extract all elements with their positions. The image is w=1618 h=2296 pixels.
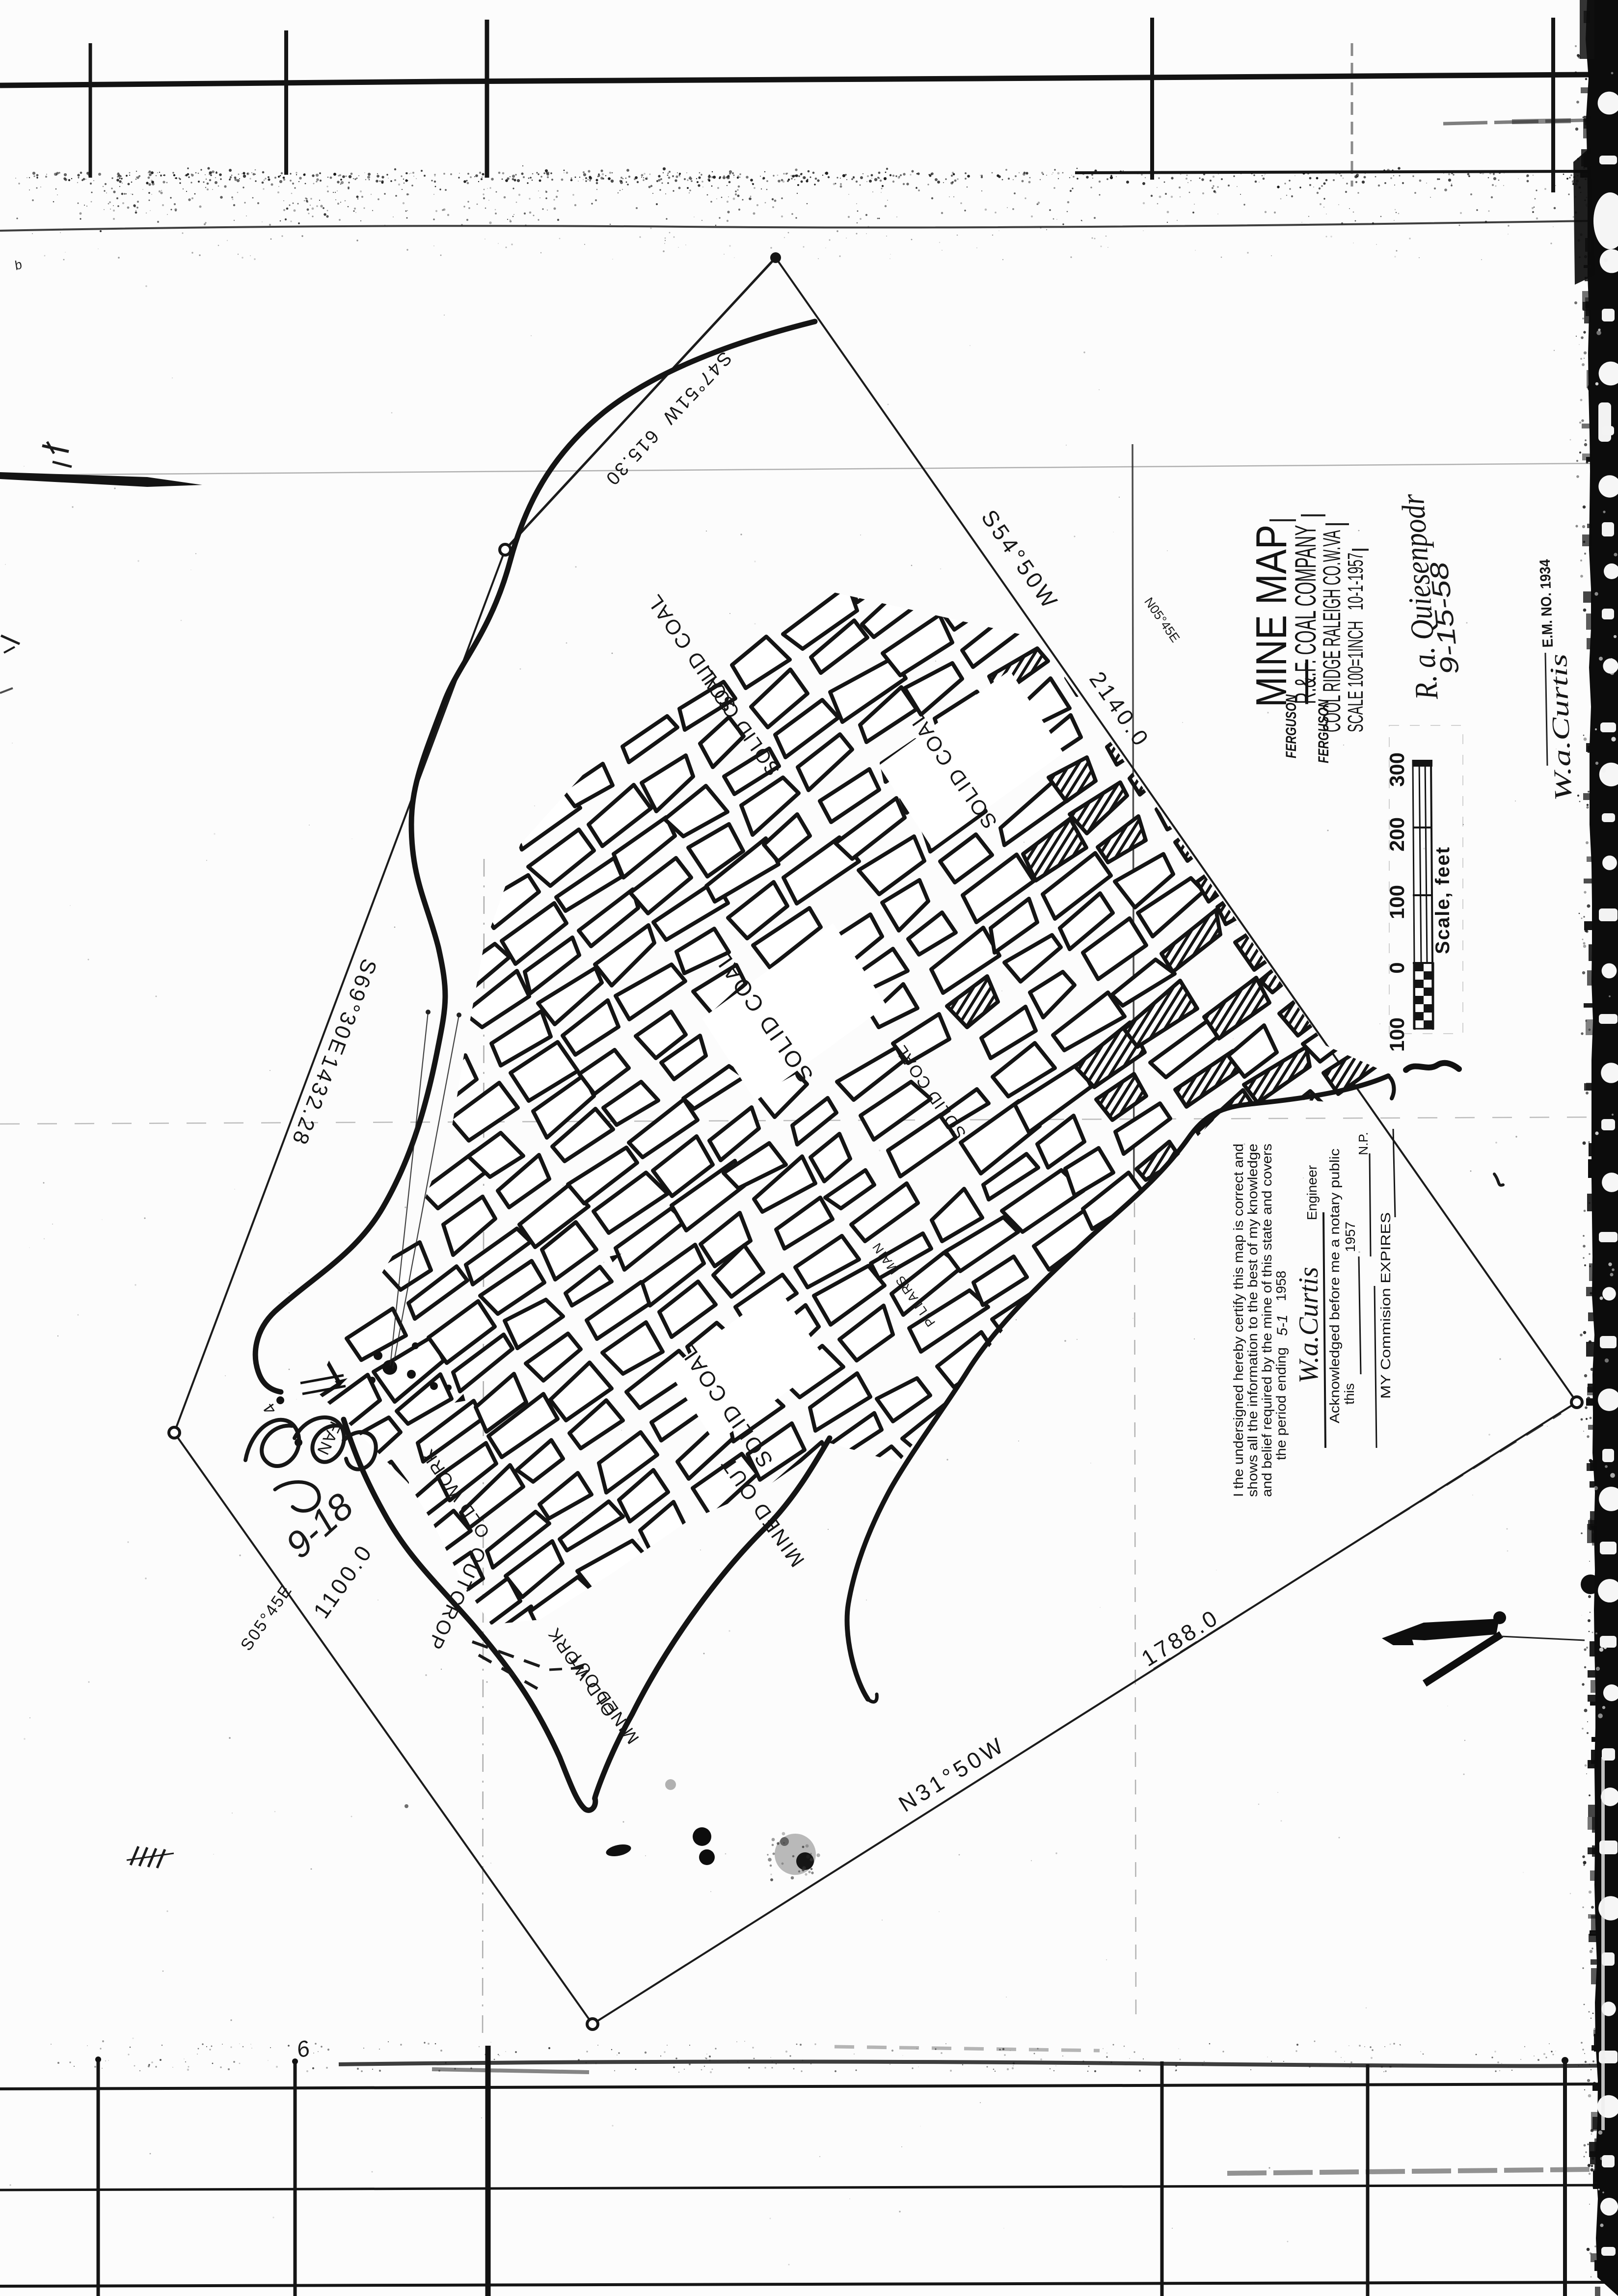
svg-text:6: 6 [294,2035,312,2063]
svg-text:N05°45E: N05°45E [1141,594,1183,645]
svg-text:W.a.Curtis: W.a.Curtis [1294,1267,1324,1384]
svg-text:MY Commision EXPIRES: MY Commision EXPIRES [1378,1212,1393,1399]
svg-text:2140.0: 2140.0 [1084,667,1155,753]
svg-text:b: b [12,257,24,273]
svg-text:5-1: 5-1 [1274,1314,1291,1335]
svg-text:N.P.: N.P. [1356,1132,1371,1155]
svg-text:I the undersigned hereby certi: I the undersigned hereby certify this ma… [1231,1144,1246,1497]
svg-text:SCALE 100=1INCH 10-1-1957: SCALE 100=1INCH 10-1-1957 [1344,553,1368,732]
svg-text:and belief required by the min: and belief required by the mine of this … [1259,1144,1274,1497]
svg-text:1958: 1958 [1273,1271,1289,1301]
svg-text:MINED OUT: MINED OUT [565,1648,643,1748]
svg-text:100: 100 [1385,1017,1408,1052]
svg-text:1957: 1957 [1343,1222,1358,1252]
svg-text:1788.0: 1788.0 [1137,1604,1224,1672]
svg-text:MINE MAP: MINE MAP [1247,525,1295,707]
svg-text:Engineer: Engineer [1304,1165,1320,1220]
svg-text:S69°30E: S69°30E [322,956,381,1060]
svg-text:this: this [1342,1383,1357,1405]
svg-text:shows all the information to t: shows all the information to the best of… [1245,1144,1260,1497]
svg-text:N31°50W: N31°50W [894,1731,1010,1817]
svg-text:Acknowledged before me a notar: Acknowledged before me a notary public [1327,1148,1342,1423]
svg-text:1432.28: 1432.28 [287,1052,343,1150]
svg-text:W.a.Curtis: W.a.Curtis [1544,653,1577,801]
svg-text:S47°51W 615.30: S47°51W 615.30 [600,347,735,490]
svg-text:S54°50W: S54°50W [976,505,1064,615]
svg-text:E.M. NO. 1934: E.M. NO. 1934 [1537,559,1556,648]
svg-text:the period ending: the period ending [1273,1347,1289,1460]
svg-text:R.&.F. COAL COMPANY: R.&.F. COAL COMPANY [1289,525,1322,704]
svg-text:Scale, feet: Scale, feet [1432,846,1454,954]
svg-text:S05°45E: S05°45E [237,1581,296,1654]
svg-text:COOL RIDGE RALEIGH CO.W.VA: COOL RIDGE RALEIGH CO.W.VA [1318,530,1346,732]
